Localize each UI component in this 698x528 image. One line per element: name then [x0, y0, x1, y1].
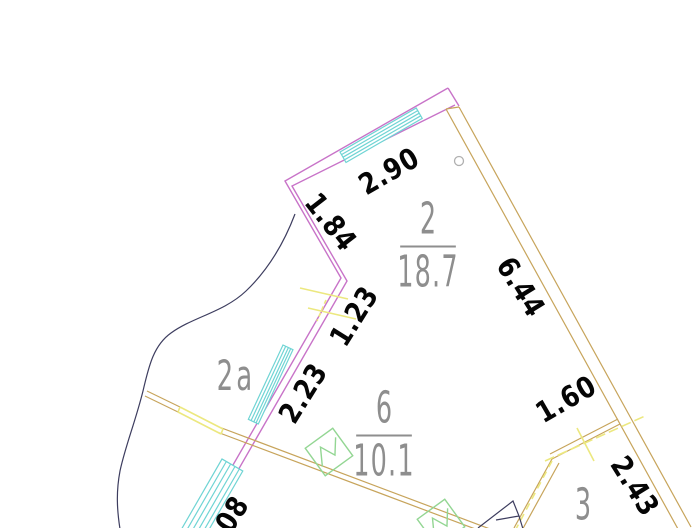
vent-symbol-bottom: [417, 499, 464, 528]
room-label-2: 2 18.7: [397, 198, 458, 295]
zone-label-2a: 2a: [217, 355, 256, 397]
room-6-number: 6: [376, 387, 392, 431]
room-3-number: 3: [575, 484, 591, 528]
room-6-area: 10.1: [353, 440, 414, 484]
room-2-area: 18.7: [397, 251, 458, 295]
room-label-3: 3: [563, 484, 604, 528]
room-label-6: 6 10.1: [353, 387, 414, 484]
exterior-wall-magenta: [196, 88, 459, 528]
floorplan-canvas[interactable]: 2.90 1.84 1.23 2.23 6.44 1.60 2.43 08 2 …: [0, 0, 698, 528]
room-2-number: 2: [420, 198, 436, 242]
drawing-layer: [0, 0, 698, 528]
point-marker: [455, 157, 464, 166]
terrain-curve: [117, 214, 295, 528]
